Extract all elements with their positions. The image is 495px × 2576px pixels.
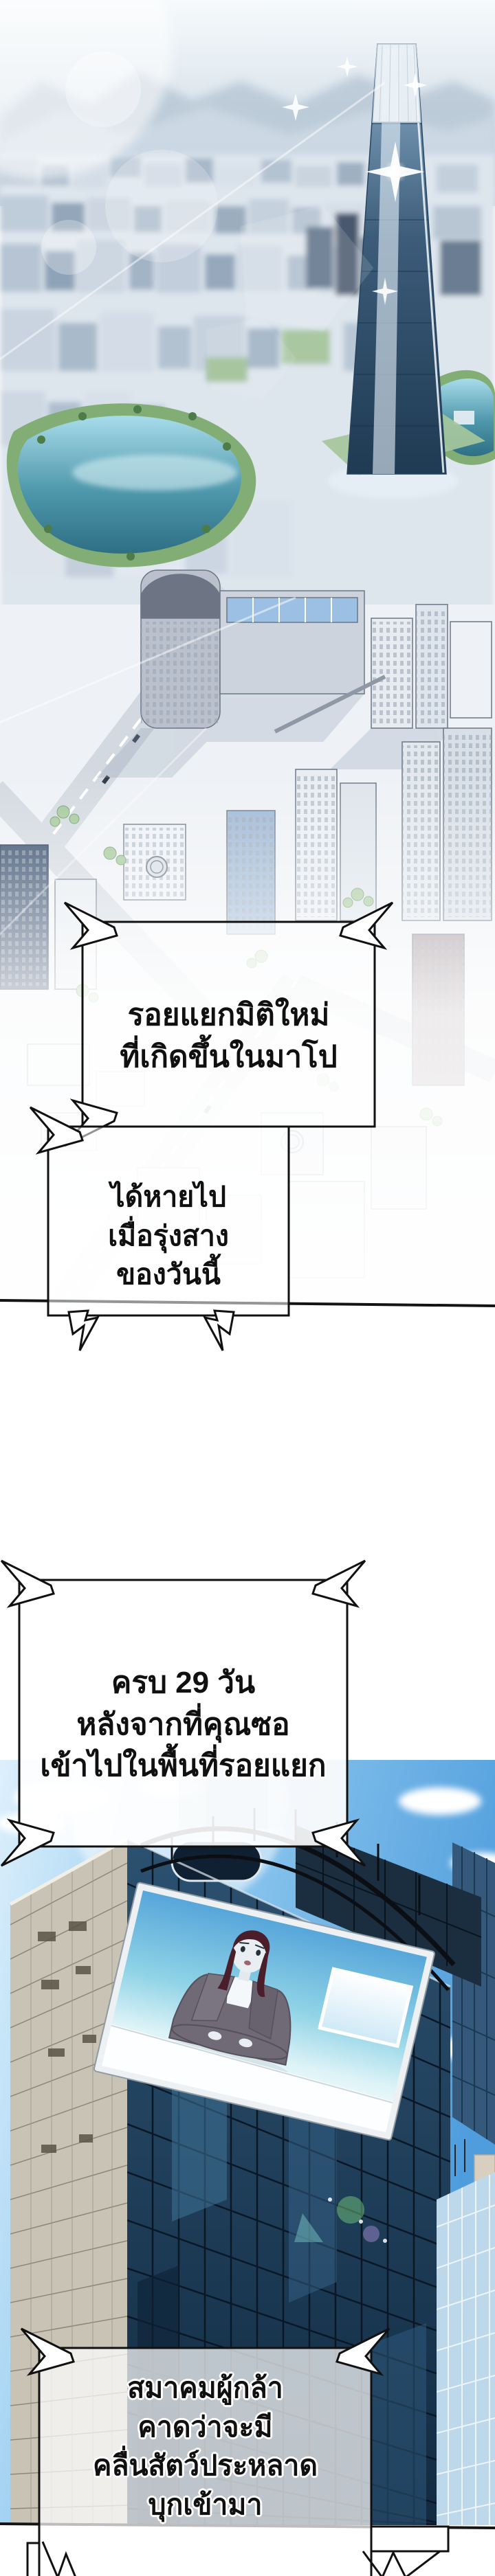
bubble-line: รอยแยกมิติใหม่ [82,995,375,1037]
bubble-line: เข้าไปในพื้นที่รอยแยก [19,1745,347,1787]
right-dark-tower [452,1842,495,2145]
bubble-line: ได้หายไป [48,1177,289,1217]
bubble-line: ของวันนี้ [48,1255,289,1294]
bubble-line: ครบ 29 วัน [19,1662,347,1704]
bubble-line: คาดว่าจะมี [39,2408,371,2447]
bubble-line: สมาคมผู้กล้า [39,2369,371,2408]
bubble-3-text: ครบ 29 วัน หลังจากที่คุณซอ เข้าไปในพื้นท… [19,1662,347,1787]
bubble-line: หลังจากที่คุณซอ [19,1704,347,1746]
bubble-line: เมื่อรุ่งสาง [48,1217,289,1256]
bubble-2-text: ได้หายไป เมื่อรุ่งสาง ของวันนี้ [48,1177,289,1294]
lake-park-left [7,403,256,567]
bubble-line: คลื่นสัตว์ประหลาด [39,2446,371,2485]
bubble-line: ที่เกิดขึ้นในมาโป [82,1037,375,1078]
building-right [437,2139,495,2525]
webtoon-page: รอยแยกมิติใหม่ ที่เกิดขึ้นในมาโป ได้หายไ… [0,0,495,2576]
bubble-1-text: รอยแยกมิติใหม่ ที่เกิดขึ้นในมาโป [82,995,375,1078]
bubble-line: บุกเข้ามา [39,2485,371,2524]
bubble-4-text: สมาคมผู้กล้า คาดว่าจะมี คลื่นสัตว์ประหลา… [39,2369,371,2524]
panel-city-aerial [0,0,495,1309]
